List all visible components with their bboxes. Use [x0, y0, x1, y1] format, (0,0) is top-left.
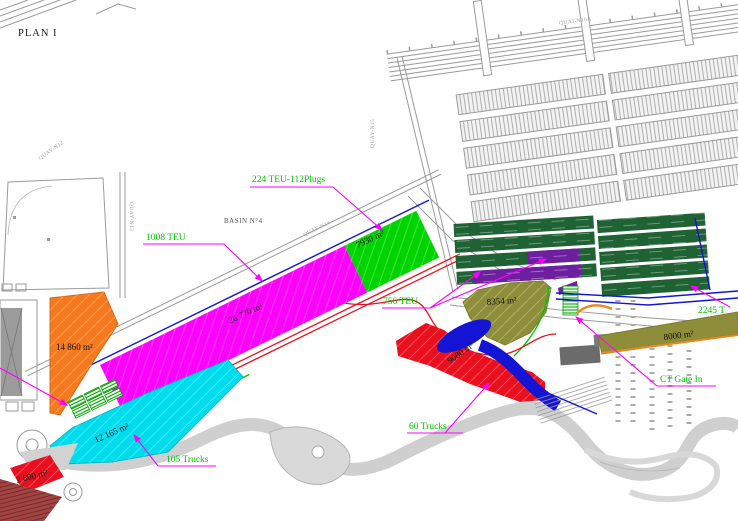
corner-quay-lines — [0, 0, 136, 28]
crane-post — [576, 0, 595, 61]
gate-building — [559, 345, 600, 366]
container-rows — [456, 55, 738, 222]
quay12-label: QUAY-N12 — [38, 140, 65, 162]
quay15-label: QUAY-N15 — [370, 119, 376, 148]
block-texture — [453, 215, 596, 284]
headland-circle — [312, 446, 324, 458]
annotation-2245: 2245 T — [698, 306, 725, 316]
yard-dot — [47, 238, 50, 241]
quay14-label: QUAY-N14 — [303, 220, 332, 238]
port-plan-drawing: QUAI-N16A 26 770 m² 7930 m² QUAY-N14 — [0, 0, 738, 521]
small-structure — [6, 402, 18, 411]
annotation-1008teu: 1008 TEU — [146, 233, 186, 243]
container-yard: QUAI-N16A — [380, 0, 738, 230]
block-texture — [597, 213, 710, 297]
annotation-224teu: 224 TEU-112Plugs — [252, 175, 325, 185]
olive-east-label: 8354 m² — [486, 295, 517, 307]
annotation-ct-gate-in: CT Gate In — [660, 375, 703, 385]
quay13-label: QUAY-N13 — [128, 202, 134, 231]
plan-title: PLAN I — [18, 28, 58, 39]
headland — [270, 427, 350, 485]
annotation-60trucks: 60 Trucks — [409, 422, 447, 432]
small-structure — [22, 402, 34, 411]
gate-facilities — [533, 286, 689, 432]
annotation-105trucks: 105 Trucks — [166, 455, 209, 465]
basin-label: BASIN N°4 — [224, 217, 263, 225]
roundabout-south — [64, 483, 82, 501]
export-blocks-west — [453, 215, 596, 284]
plan-canvas: QUAI-N16A 26 770 m² 7930 m² QUAY-N14 — [0, 0, 738, 521]
annotation-756teu: 756 TEU — [383, 297, 418, 307]
orange-area-label: 14 860 m² — [56, 342, 93, 352]
export-blocks-east — [597, 213, 710, 297]
yard-dot — [13, 216, 16, 219]
west-yard-boundary — [3, 178, 109, 290]
